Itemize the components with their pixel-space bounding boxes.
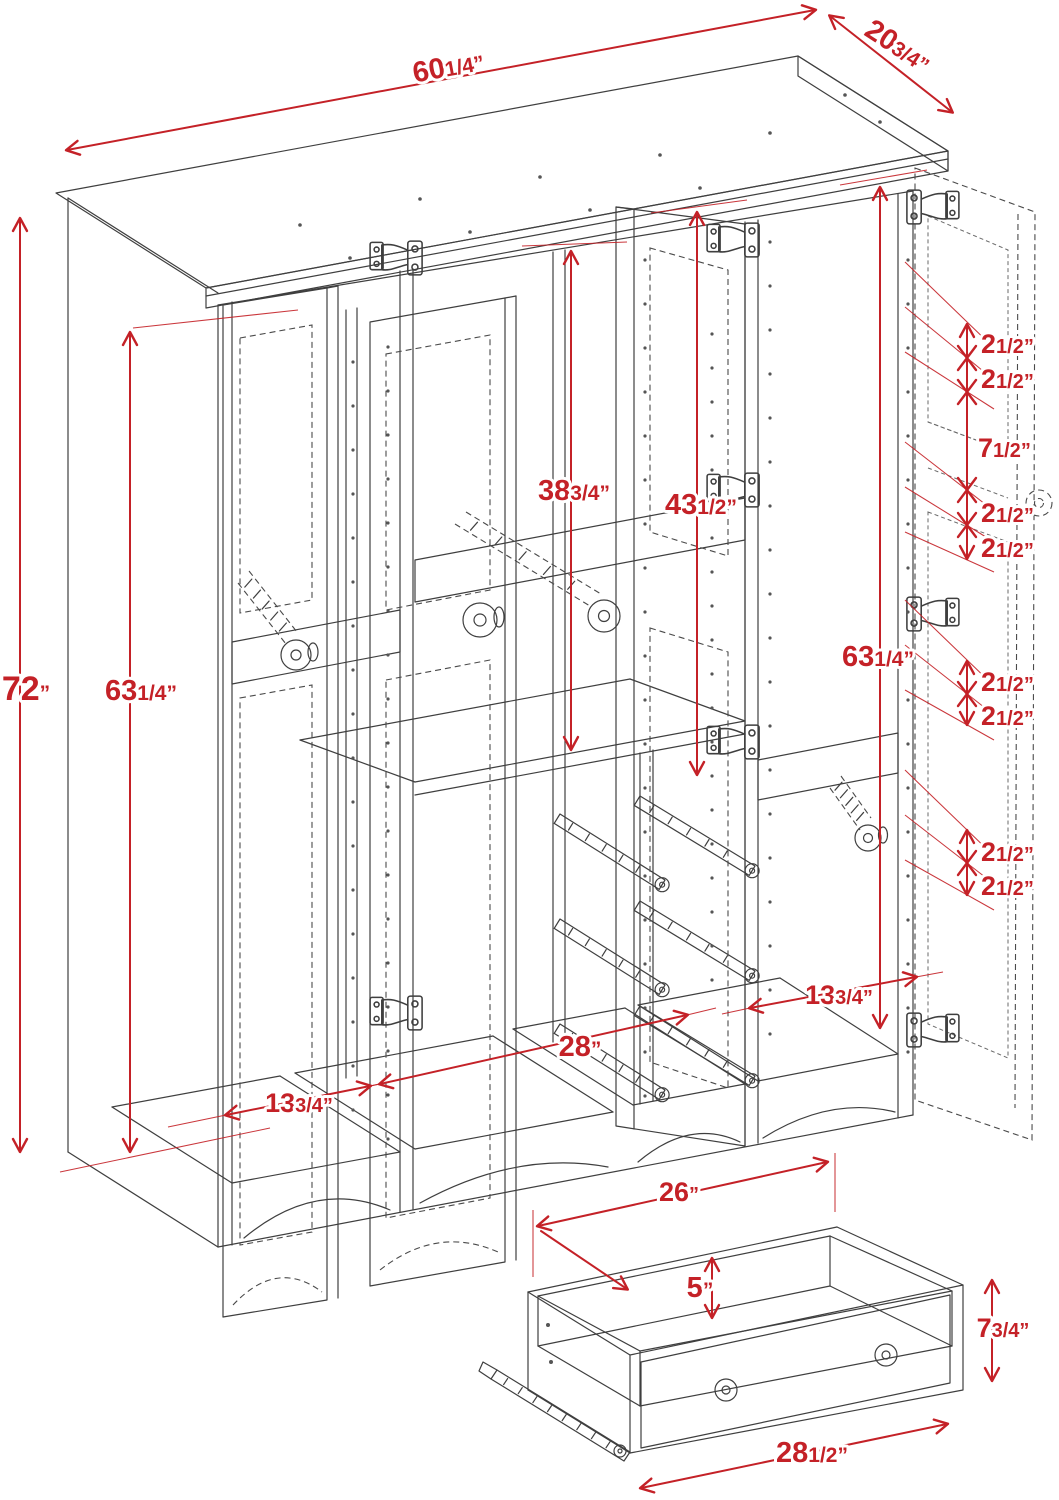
wardrobe-dimension-diagram: 601/4” 203/4” 72” 631/4” 383/4” 431/2” 6… bbox=[0, 0, 1059, 1500]
diagram-page: 601/4” 203/4” 72” 631/4” 383/4” 431/2” 6… bbox=[0, 0, 1059, 1500]
